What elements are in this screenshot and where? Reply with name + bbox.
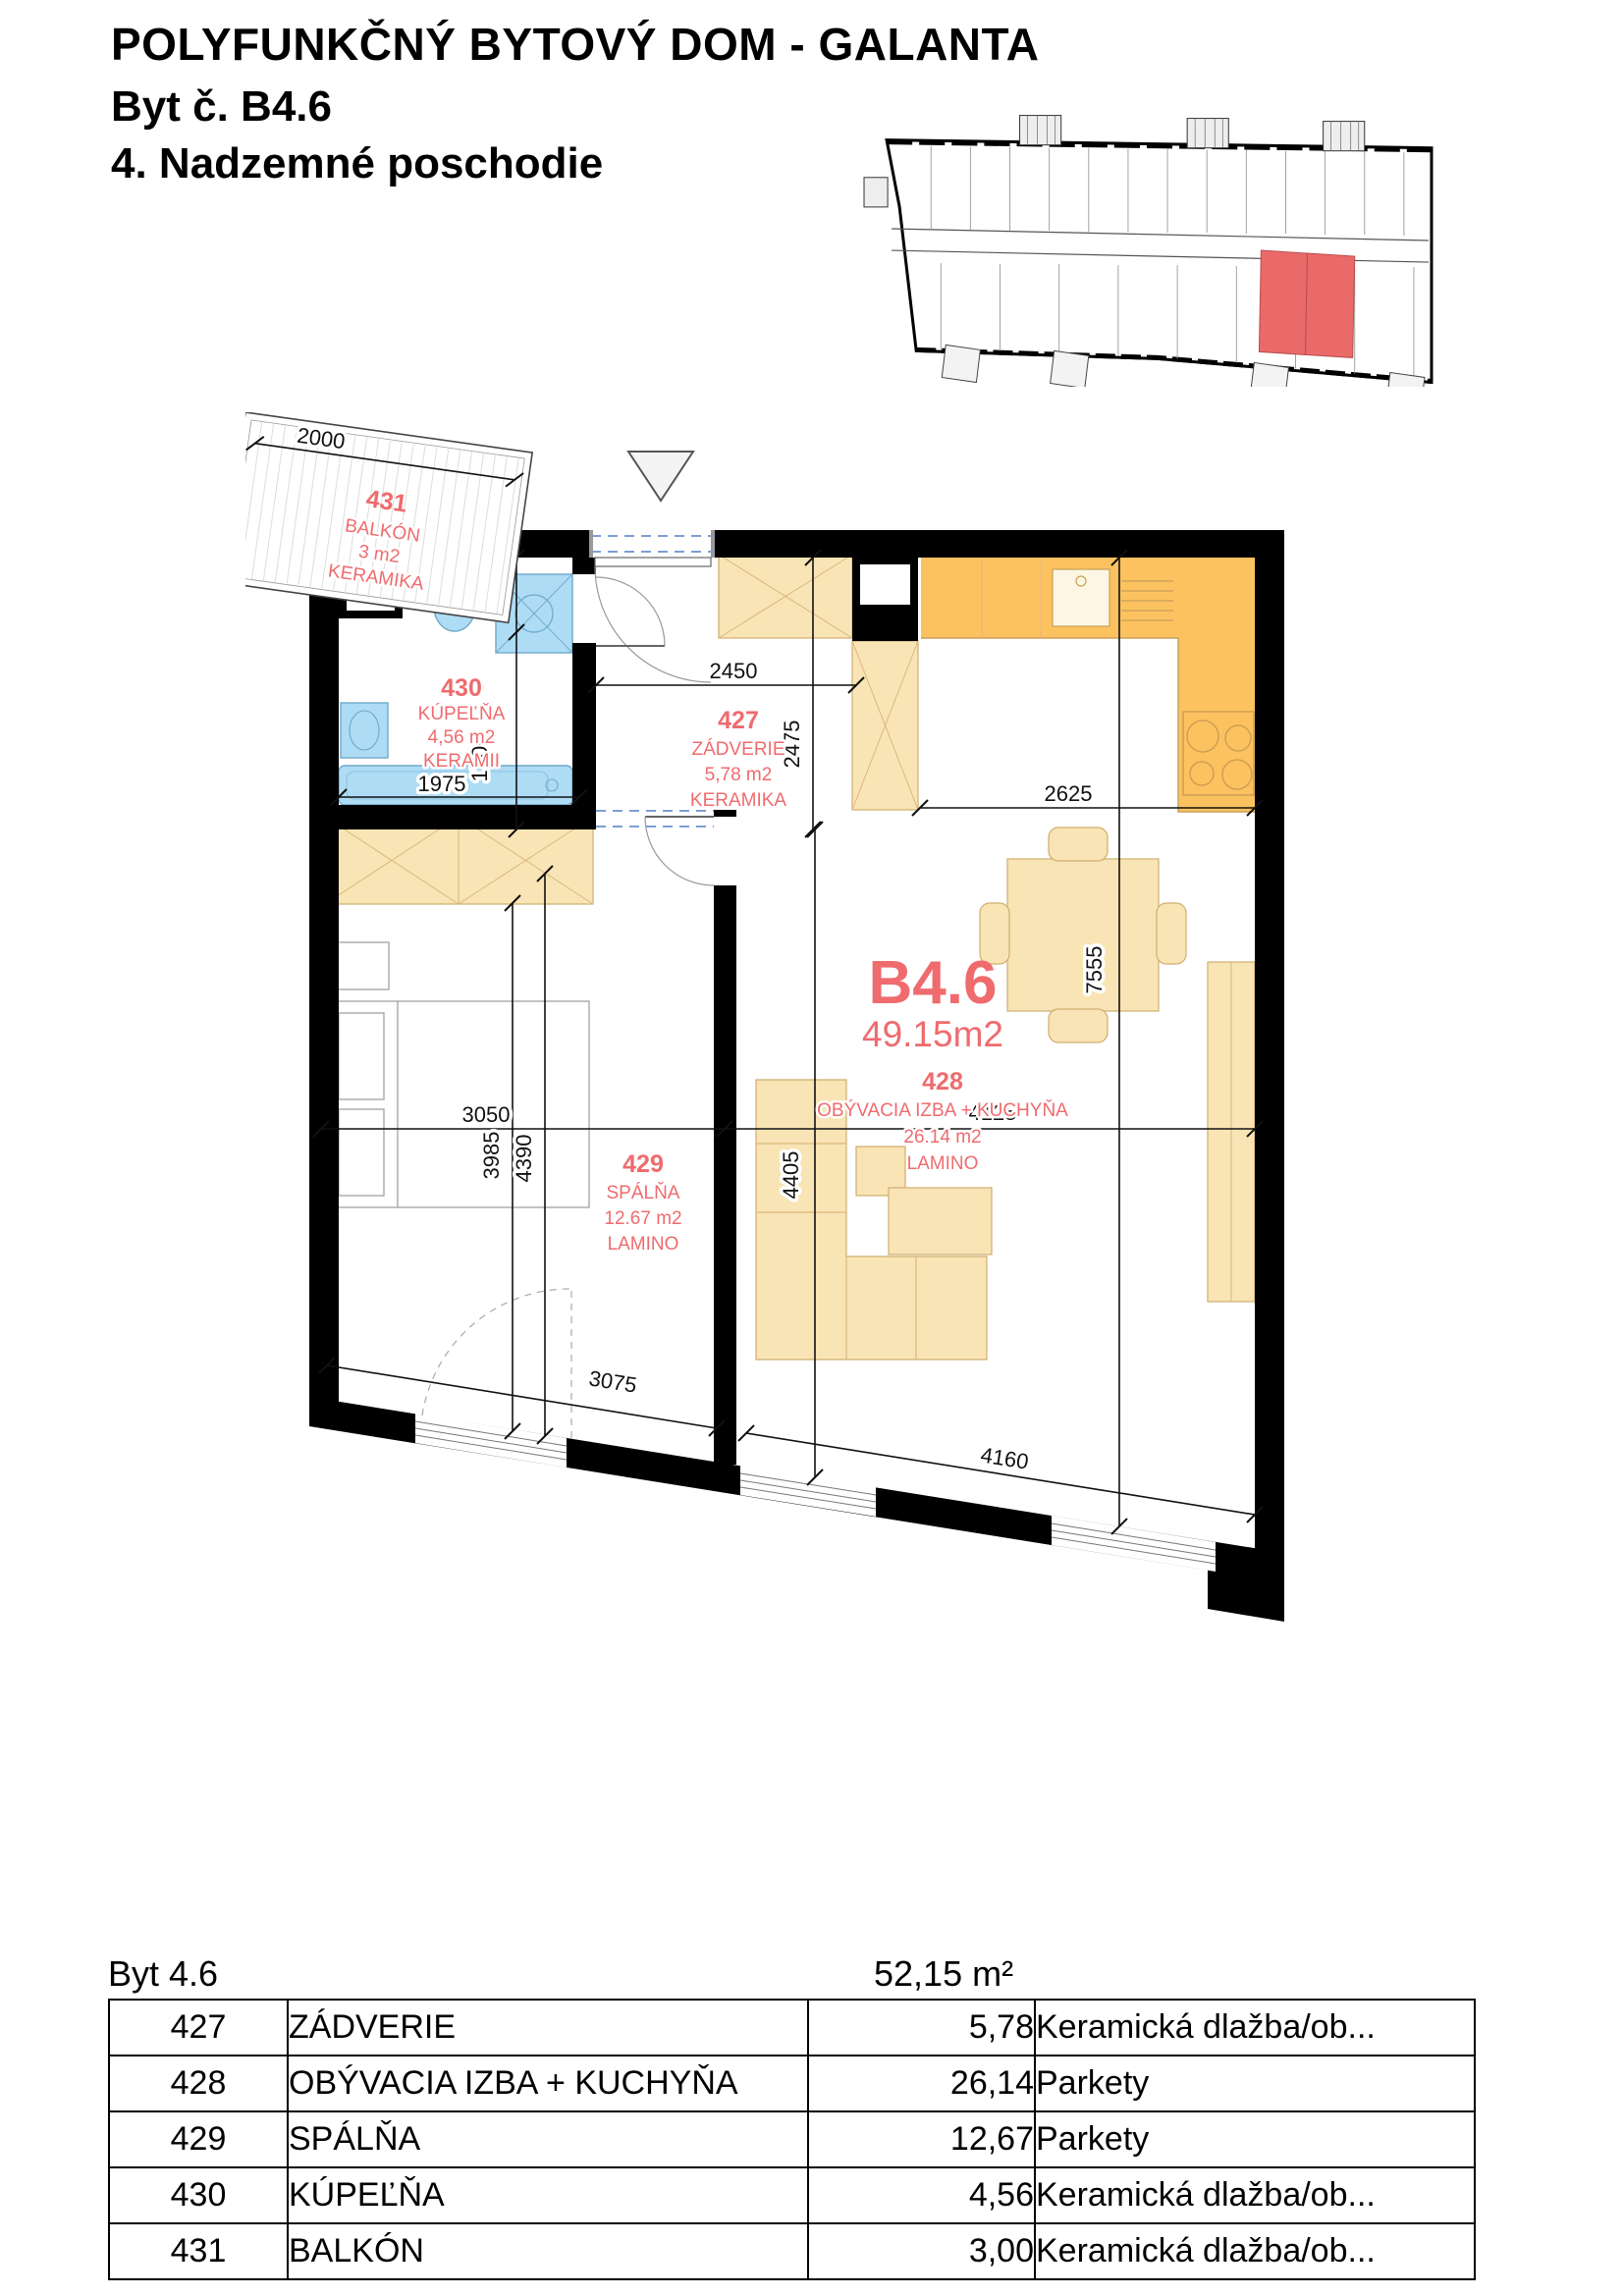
dimension-3075: 3075 — [587, 1365, 638, 1397]
bathroom-door — [596, 577, 665, 646]
washbasin — [341, 703, 388, 758]
room-table-block: Byt 4.6 52,15 m² 427ZÁDVERIE5,78Keramick… — [108, 1953, 1473, 2280]
table-row: 431BALKÓN3,00Keramická dlažba/ob... — [109, 2223, 1475, 2279]
table-row: 429SPÁLŇA12,67Parkety — [109, 2111, 1475, 2167]
page-title: POLYFUNKČNÝ BYTOVÝ DOM - GALANTA — [111, 18, 1039, 71]
table-row: 427ZÁDVERIE5,78Keramická dlažba/ob... — [109, 2000, 1475, 2056]
svg-text:KERAMIKA: KERAMIKA — [690, 790, 787, 811]
table-cell-area: 4,56 — [808, 2167, 1035, 2223]
table-cell-area: 12,67 — [808, 2111, 1035, 2167]
svg-text:430: 430 — [441, 674, 482, 702]
dimension-4405: 4405 — [779, 1151, 803, 1200]
room-label-429: 429 SPÁLŇA 12.67 m2 LAMINO — [604, 1150, 681, 1255]
room-label-427: 427 ZÁDVERIE 5,78 m2 KERAMIKA — [690, 707, 787, 811]
table-cell-name: KÚPEĽŇA — [288, 2167, 808, 2223]
table-cell-number: 428 — [109, 2056, 288, 2111]
floorplan-document-page: POLYFUNKČNÝ BYTOVÝ DOM - GALANTA Byt č. … — [0, 0, 1623, 2296]
dimension-2450: 2450 — [710, 659, 758, 683]
svg-text:KERAMII: KERAMII — [423, 751, 500, 772]
hall-opening — [596, 811, 714, 827]
table-cell-material: Keramická dlažba/ob... — [1035, 2167, 1475, 2223]
svg-text:LAMINO: LAMINO — [608, 1234, 679, 1255]
svg-text:B4.6: B4.6 — [869, 949, 998, 1017]
table-total-area: 52,15 m² — [874, 1953, 1013, 1995]
svg-text:SPÁLŇA: SPÁLŇA — [607, 1182, 680, 1203]
room-label-428: 428 OBÝVACIA IZBA + KUCHYŇA 26.14 m2 LAM… — [817, 1068, 1068, 1174]
svg-text:OBÝVACIA IZBA + KUCHYŇA: OBÝVACIA IZBA + KUCHYŇA — [817, 1099, 1068, 1121]
table-cell-material: Keramická dlažba/ob... — [1035, 2223, 1475, 2279]
dining-table — [980, 828, 1186, 1042]
overview-building-outline — [864, 116, 1432, 387]
svg-text:49.15m2: 49.15m2 — [862, 1014, 1003, 1054]
tv-cabinet — [1208, 962, 1255, 1302]
overview-plan-svg — [862, 90, 1434, 387]
table-cell-area: 3,00 — [808, 2223, 1035, 2279]
floor-plan-svg: 775 1700 1975 2450 2475 2625 7555 3050 4… — [245, 412, 1384, 1747]
svg-text:431: 431 — [364, 485, 408, 518]
dimension-2625: 2625 — [1045, 781, 1093, 806]
dimension-3050: 3050 — [462, 1102, 511, 1127]
svg-text:KÚPEĽŇA: KÚPEĽŇA — [418, 703, 506, 724]
table-cell-name: BALKÓN — [288, 2223, 808, 2279]
bedroom-wardrobe — [325, 817, 593, 904]
room-table-body: 427ZÁDVERIE5,78Keramická dlažba/ob...428… — [109, 2000, 1475, 2279]
table-header: Byt 4.6 52,15 m² — [108, 1953, 1473, 1999]
svg-text:428: 428 — [922, 1068, 963, 1095]
balcony-door-swing — [422, 1289, 571, 1438]
svg-text:427: 427 — [718, 707, 759, 734]
table-row: 428OBÝVACIA IZBA + KUCHYŇA26,14Parkety — [109, 2056, 1475, 2111]
dimension-4390: 4390 — [512, 1135, 536, 1183]
svg-text:12.67 m2: 12.67 m2 — [604, 1208, 681, 1229]
dimension-7555: 7555 — [1082, 946, 1107, 994]
svg-text:26.14 m2: 26.14 m2 — [903, 1127, 981, 1148]
kitchen-counter — [921, 558, 1255, 812]
svg-text:4,56 m2: 4,56 m2 — [428, 727, 496, 748]
balcony: 2000 431 BALKÓN 3 m2 KERAMIKA — [245, 412, 532, 622]
doors-layer — [422, 530, 715, 1438]
table-cell-number: 429 — [109, 2111, 288, 2167]
table-cell-area: 5,78 — [808, 2000, 1035, 2056]
unit-label: B4.6 49.15m2 — [862, 949, 1003, 1054]
table-cell-name: OBÝVACIA IZBA + KUCHYŇA — [288, 2056, 808, 2111]
table-unit-label: Byt 4.6 — [108, 1953, 218, 1994]
coffee-table — [889, 1188, 992, 1255]
table-cell-material: Keramická dlažba/ob... — [1035, 2000, 1475, 2056]
table-cell-name: SPÁLŇA — [288, 2111, 808, 2167]
overview-entrance — [864, 178, 888, 207]
table-cell-material: Parkety — [1035, 2111, 1475, 2167]
svg-text:LAMINO: LAMINO — [907, 1153, 979, 1174]
room-label-430: 430 KÚPEĽŇA 4,56 m2 KERAMII — [418, 674, 506, 772]
dimension-4160: 4160 — [979, 1442, 1030, 1473]
svg-text:5,78 m2: 5,78 m2 — [705, 765, 773, 785]
room-table: 427ZÁDVERIE5,78Keramická dlažba/ob...428… — [108, 1999, 1476, 2280]
table-cell-area: 26,14 — [808, 2056, 1035, 2111]
table-cell-number: 427 — [109, 2000, 288, 2056]
table-row: 430KÚPEĽŇA4,56Keramická dlažba/ob... — [109, 2167, 1475, 2223]
table-cell-material: Parkety — [1035, 2056, 1475, 2111]
table-cell-number: 431 — [109, 2223, 288, 2279]
svg-text:ZÁDVERIE: ZÁDVERIE — [691, 739, 784, 760]
bed — [329, 942, 589, 1207]
dimension-3985: 3985 — [479, 1132, 504, 1180]
table-cell-number: 430 — [109, 2167, 288, 2223]
kitchen-sink — [1053, 569, 1109, 626]
svg-text:429: 429 — [622, 1150, 664, 1178]
dimension-1975: 1975 — [418, 772, 466, 796]
table-cell-name: ZÁDVERIE — [288, 2000, 808, 2056]
entrance-arrow-marker — [628, 452, 693, 501]
overview-highlighted-unit — [1259, 250, 1354, 357]
